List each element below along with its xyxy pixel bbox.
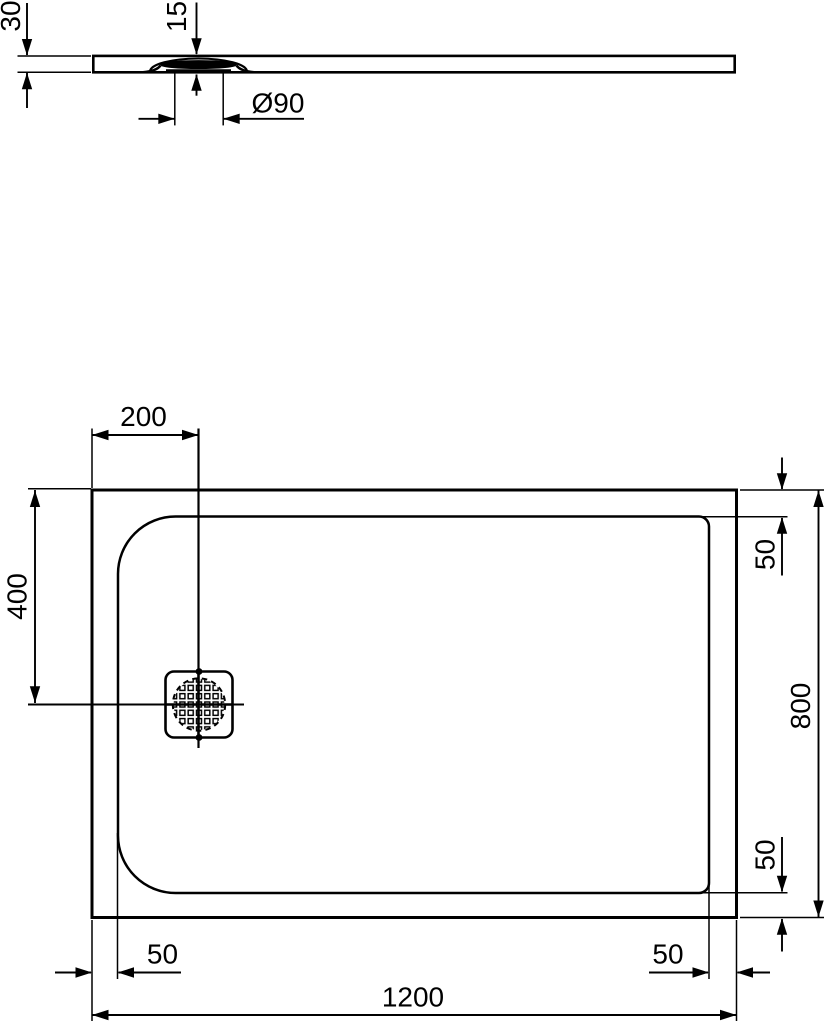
svg-text:30: 30 (0, 0, 26, 31)
svg-text:Ø90: Ø90 (252, 88, 305, 119)
svg-text:1200: 1200 (382, 982, 444, 1013)
svg-text:50: 50 (652, 939, 683, 970)
svg-text:400: 400 (2, 573, 33, 620)
svg-text:50: 50 (750, 539, 781, 570)
svg-text:15: 15 (161, 1, 192, 32)
svg-text:50: 50 (750, 839, 781, 870)
svg-text:200: 200 (120, 401, 167, 432)
svg-text:800: 800 (785, 683, 816, 730)
svg-text:50: 50 (147, 939, 178, 970)
